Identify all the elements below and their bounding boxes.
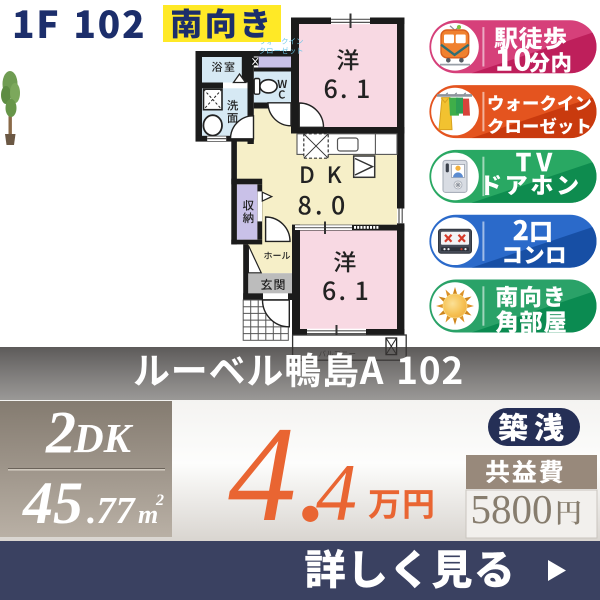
svg-text:2: 2 bbox=[45, 400, 76, 466]
svg-text:.77: .77 bbox=[87, 490, 137, 532]
svg-text:4: 4 bbox=[316, 447, 357, 538]
svg-text:2: 2 bbox=[155, 492, 164, 509]
svg-text:DK: DK bbox=[73, 415, 134, 461]
svg-text:5800: 5800 bbox=[471, 486, 553, 532]
svg-text:45: 45 bbox=[22, 470, 83, 536]
